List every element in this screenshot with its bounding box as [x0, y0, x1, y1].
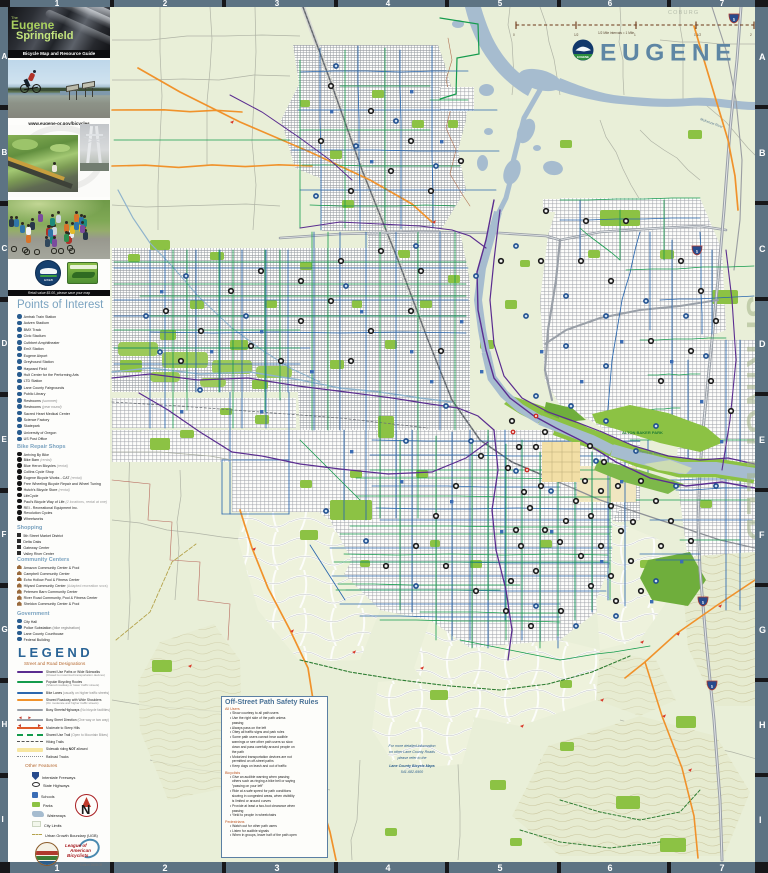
svg-text:on other Lane County Roads: on other Lane County Roads: [389, 750, 435, 754]
svg-text:For more detailed information: For more detailed information: [389, 744, 436, 748]
svg-text:COBURG: COBURG: [668, 10, 699, 16]
svg-text:please refer to the: please refer to the: [397, 756, 427, 760]
svg-text:ALTON BAKER PARK: ALTON BAKER PARK: [622, 430, 663, 435]
svg-text:1: 1: [634, 33, 636, 37]
svg-text:Lane County Bicycle Maps: Lane County Bicycle Maps: [389, 764, 435, 768]
svg-text:EUGENE: EUGENE: [577, 55, 589, 59]
svg-text:1/2 Mile intervals = 1 Mile: 1/2 Mile intervals = 1 Mile: [598, 31, 634, 35]
svg-text:1 1/2: 1 1/2: [694, 33, 701, 37]
svg-text:EUGENE: EUGENE: [600, 40, 737, 67]
svg-text:2: 2: [750, 33, 752, 37]
svg-text:1/2: 1/2: [574, 33, 579, 37]
svg-text:541-682-6900: 541-682-6900: [401, 770, 423, 774]
svg-text:SPRINGFIELD: SPRINGFIELD: [740, 296, 755, 544]
svg-text:0: 0: [513, 33, 515, 37]
